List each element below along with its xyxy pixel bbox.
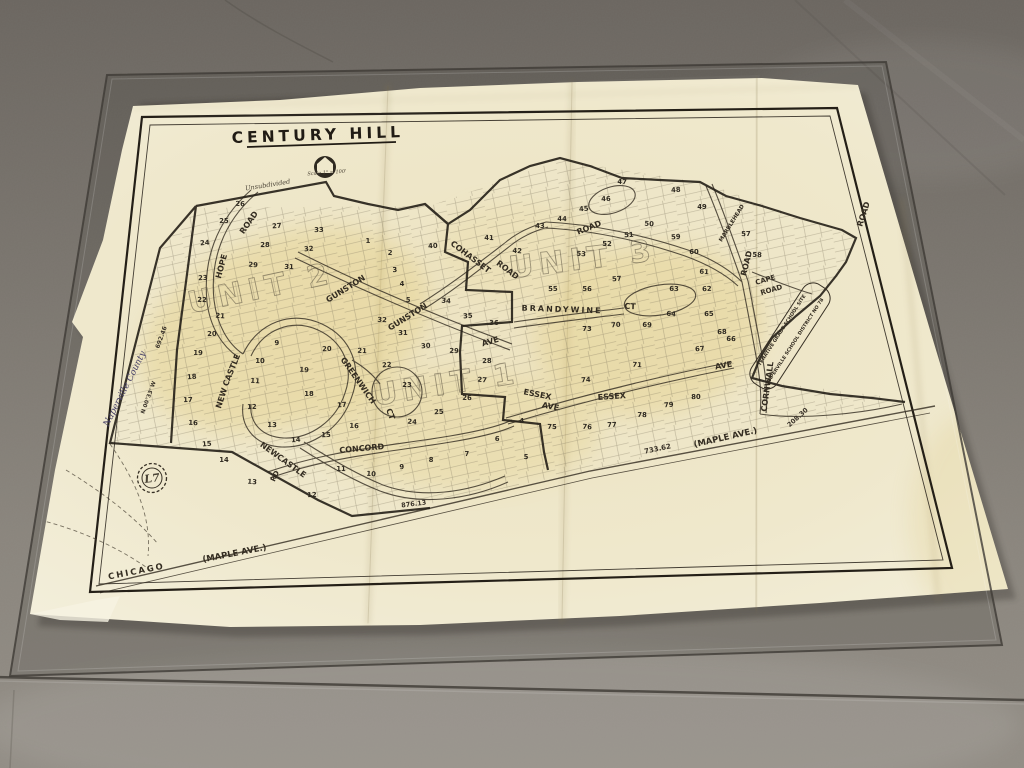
- lot-number: 57: [612, 275, 622, 284]
- scene-svg: CENTURY HILL L7 UNIT 2UNIT 1UNIT 3 HOPER…: [0, 0, 1024, 768]
- lot-number: 25: [219, 217, 229, 225]
- lot-number: 60: [689, 248, 699, 256]
- lot-number: 14: [291, 436, 301, 445]
- lot-number: 74: [581, 376, 591, 384]
- lot-number: 33: [314, 226, 324, 234]
- lot-number: 52: [602, 240, 612, 248]
- lot-number: 22: [382, 361, 392, 370]
- lot-number: 14: [219, 456, 229, 464]
- lot-number: 64: [666, 310, 676, 319]
- lot-number: 76: [582, 423, 592, 432]
- street-label: CT: [624, 302, 636, 311]
- lot-number: 4: [400, 280, 405, 288]
- lot-number: 29: [449, 347, 459, 355]
- lot-number: 11: [250, 377, 260, 386]
- lot-number: 44: [557, 215, 567, 223]
- lot-number: 22: [197, 296, 207, 304]
- lot-number: 32: [304, 245, 314, 254]
- lot-number: 21: [215, 312, 225, 321]
- lot-number: 9: [274, 339, 279, 347]
- lot-number: 77: [607, 421, 617, 429]
- lot-number: 30: [421, 342, 431, 351]
- lot-number: 28: [482, 357, 492, 365]
- lot-number: 23: [198, 274, 208, 282]
- lot-number: 31: [398, 329, 408, 337]
- marker-label: L7: [143, 471, 161, 486]
- lot-number: 12: [247, 403, 257, 411]
- lot-number: 49: [697, 203, 707, 211]
- lot-number: 1: [366, 237, 371, 245]
- lot-number: 78: [637, 411, 647, 419]
- lot-number: 55: [548, 285, 558, 293]
- lot-number: 24: [200, 239, 210, 248]
- lot-number: 20: [322, 345, 332, 353]
- lot-number: 10: [366, 470, 376, 479]
- lot-number: 35: [463, 312, 473, 321]
- lot-number: 42: [512, 247, 522, 256]
- lot-number: 32: [377, 316, 387, 324]
- lot-number: 58: [752, 251, 762, 259]
- lot-number: 11: [336, 465, 346, 473]
- lot-number: 61: [699, 268, 709, 277]
- lot-number: 40: [428, 242, 438, 250]
- lot-number: 62: [702, 285, 712, 293]
- lot-number: 57: [741, 230, 751, 238]
- lot-number: 45: [579, 205, 589, 214]
- lot-number: 27: [272, 222, 282, 231]
- lot-number: 20: [207, 330, 217, 338]
- lot-number: 16: [188, 419, 198, 427]
- lot-number: 5: [524, 453, 529, 461]
- photo-of-plat-map: CENTURY HILL L7 UNIT 2UNIT 1UNIT 3 HOPER…: [0, 0, 1024, 768]
- lot-number: 31: [284, 263, 294, 271]
- lot-number: 15: [321, 431, 331, 439]
- lot-number: 66: [726, 335, 736, 343]
- lot-number: 26: [235, 200, 245, 208]
- lot-number: 2: [388, 249, 393, 257]
- lot-number: 18: [304, 390, 314, 398]
- lot-number: 10: [255, 357, 265, 365]
- lot-number: 21: [357, 347, 367, 355]
- lot-number: 13: [247, 478, 257, 487]
- lot-number: 19: [193, 349, 203, 357]
- lot-number: 27: [477, 376, 487, 385]
- lot-number: 53: [576, 250, 586, 259]
- lot-number: 6: [494, 435, 500, 443]
- lot-number: 67: [695, 345, 705, 354]
- lot-number: 28: [260, 241, 270, 249]
- lot-number: 75: [547, 423, 557, 431]
- lot-number: 47: [617, 178, 627, 186]
- lot-number: 69: [642, 321, 652, 329]
- lot-number: 15: [202, 440, 212, 449]
- lot-number: 5: [405, 296, 411, 304]
- lot-number: 41: [484, 234, 494, 242]
- lot-number: 17: [183, 396, 193, 404]
- lot-number: 18: [187, 373, 197, 382]
- lot-number: 34: [441, 297, 451, 306]
- lot-number: 71: [632, 361, 642, 370]
- lot-number: 63: [669, 285, 679, 293]
- lot-number: 65: [704, 310, 714, 318]
- lot-number: 73: [582, 325, 592, 333]
- lot-number: 29: [248, 261, 258, 270]
- lot-number: 80: [691, 393, 701, 401]
- lot-number: 43: [535, 222, 545, 230]
- lot-number: 8: [429, 456, 434, 464]
- lot-number: 79: [664, 401, 674, 410]
- lot-number: 4: [519, 417, 524, 425]
- lot-number: 70: [611, 321, 621, 330]
- lot-number: 9: [399, 463, 405, 471]
- lot-number: 59: [671, 233, 681, 242]
- lot-number: 24: [407, 418, 417, 427]
- lot-number: 51: [624, 231, 634, 239]
- lot-number: 19: [299, 366, 309, 375]
- lot-number: 68: [717, 328, 727, 336]
- lot-number: 12: [307, 491, 317, 499]
- lot-number: 16: [349, 422, 359, 430]
- lot-number: 56: [582, 285, 592, 293]
- lot-number: 25: [434, 408, 444, 416]
- lot-number: 7: [464, 450, 469, 458]
- lot-number: 3: [392, 266, 398, 274]
- lot-number: 48: [671, 186, 681, 195]
- lot-number: 36: [489, 319, 499, 327]
- lot-number: 13: [267, 421, 277, 429]
- lot-number: 26: [462, 394, 472, 402]
- lot-number: 17: [337, 401, 347, 410]
- lot-number: 50: [644, 220, 654, 229]
- lot-number: 23: [402, 381, 412, 389]
- lot-number: 46: [601, 195, 611, 203]
